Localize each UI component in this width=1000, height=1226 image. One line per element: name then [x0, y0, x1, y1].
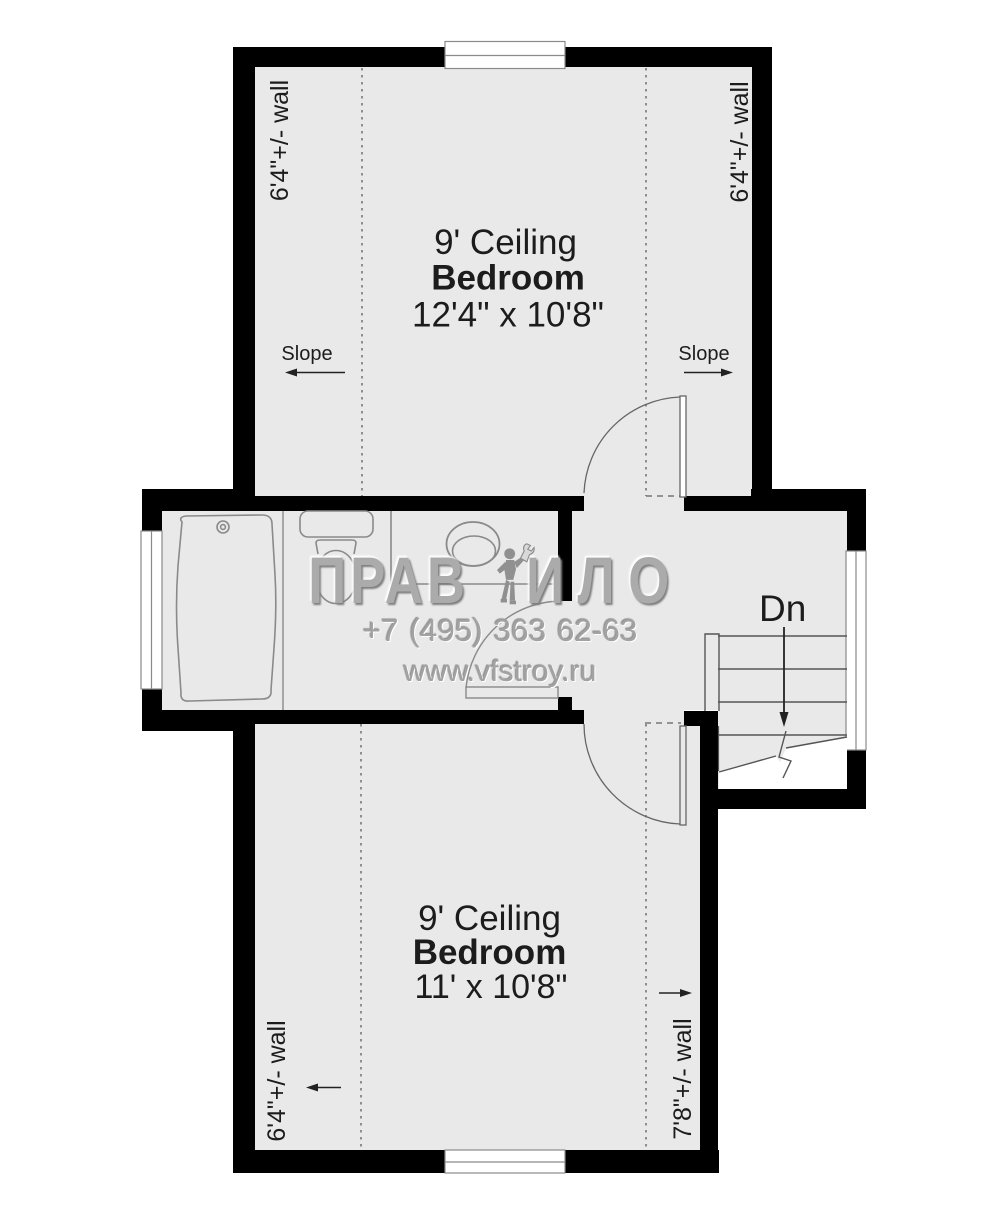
svg-text:6'4"+/- wall: 6'4"+/- wall [263, 1020, 291, 1141]
svg-text:12'4" x 10'8": 12'4" x 10'8" [412, 296, 604, 335]
svg-text:6'4"+/- wall: 6'4"+/- wall [726, 81, 754, 202]
svg-text:Slope: Slope [281, 343, 332, 365]
svg-text:Slope: Slope [678, 343, 729, 365]
svg-text:Bedroom: Bedroom [431, 259, 585, 298]
svg-text:Bedroom: Bedroom [413, 933, 567, 972]
svg-text:11' x 10'8": 11' x 10'8" [415, 968, 568, 1006]
svg-text:9' Ceiling: 9' Ceiling [434, 223, 577, 262]
svg-text:6'4"+/- wall: 6'4"+/- wall [266, 80, 294, 201]
svg-text:7'8"+/- wall: 7'8"+/- wall [669, 1018, 697, 1139]
